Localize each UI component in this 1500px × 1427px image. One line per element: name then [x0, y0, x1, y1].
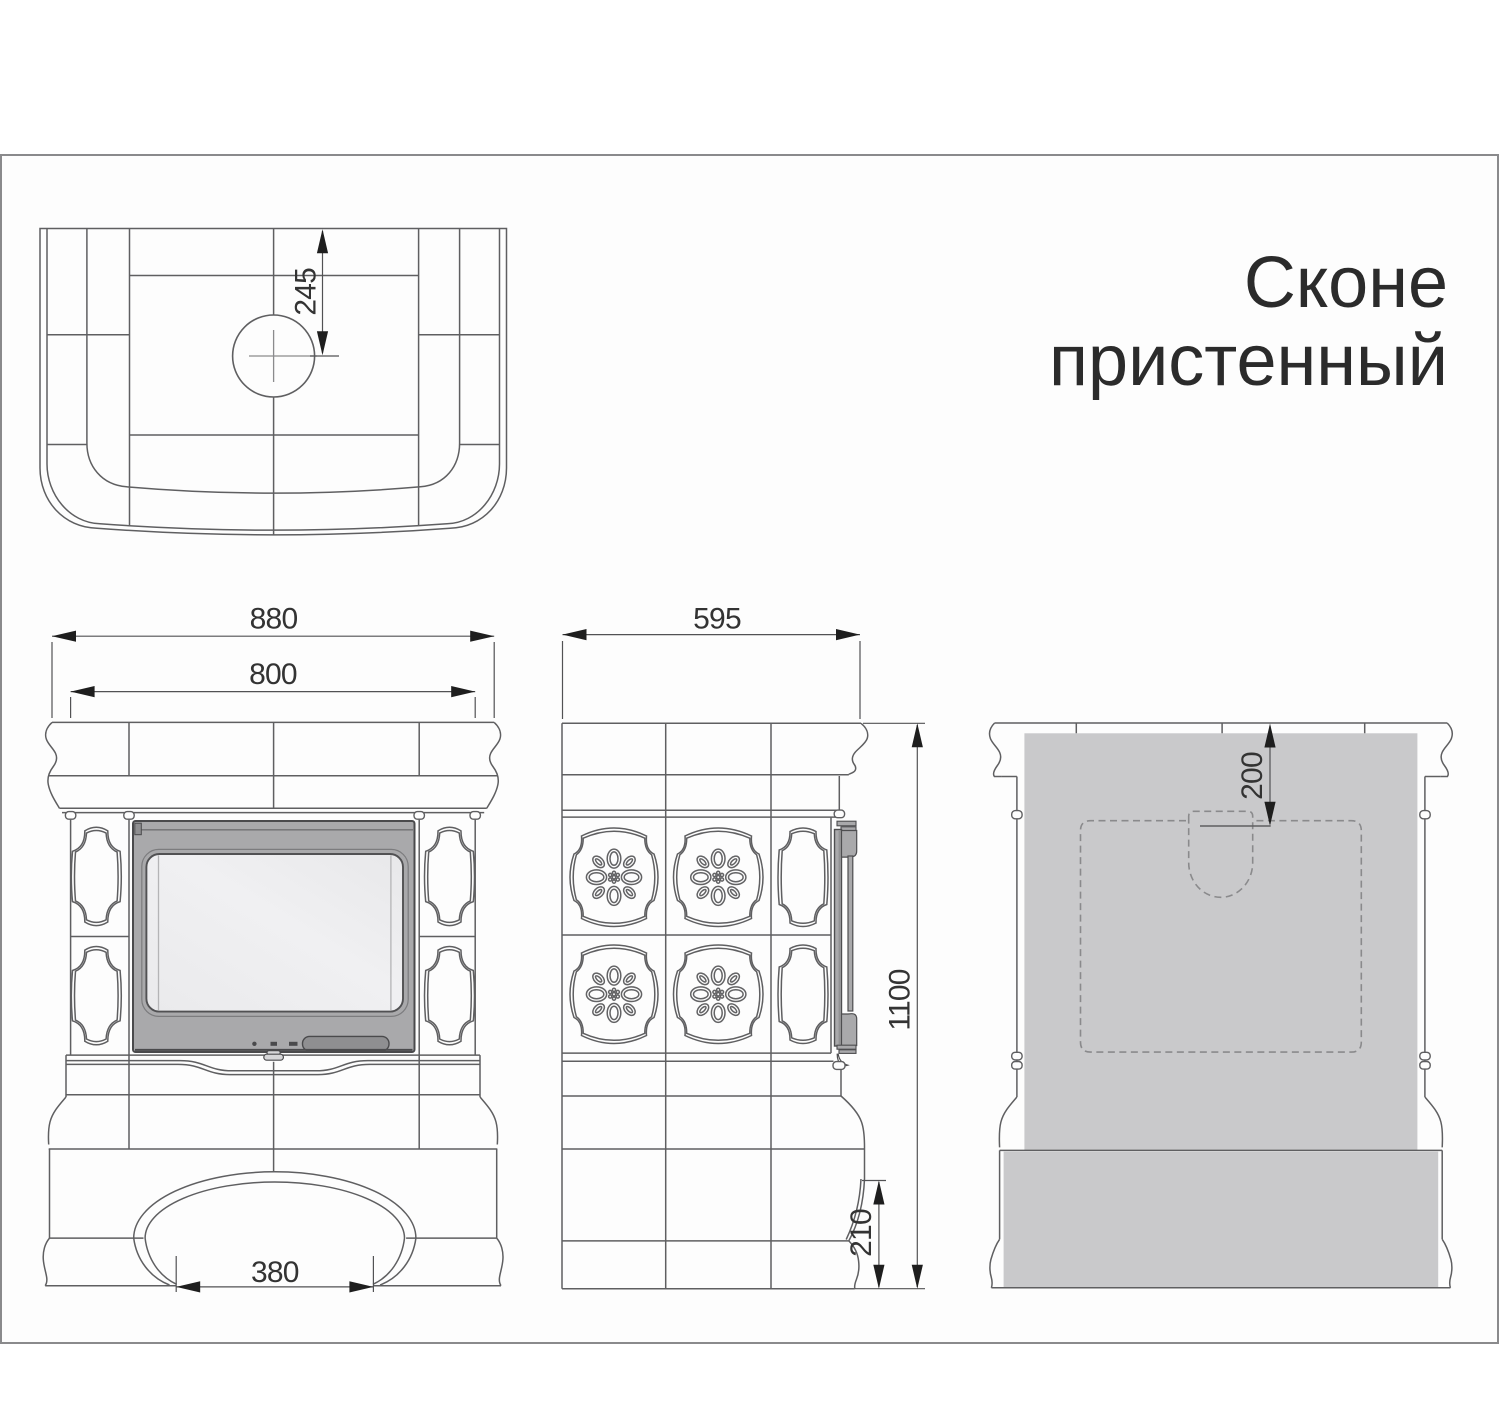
svg-text:пристенный: пристенный: [1049, 321, 1448, 401]
svg-text:1100: 1100: [883, 969, 916, 1030]
svg-text:380: 380: [251, 1256, 299, 1289]
svg-text:595: 595: [693, 603, 741, 636]
svg-text:Сконе: Сконе: [1244, 243, 1448, 323]
svg-text:245: 245: [289, 268, 322, 316]
svg-text:200: 200: [1236, 752, 1269, 800]
svg-text:880: 880: [250, 603, 298, 636]
svg-text:800: 800: [249, 658, 297, 691]
svg-text:210: 210: [845, 1209, 878, 1257]
